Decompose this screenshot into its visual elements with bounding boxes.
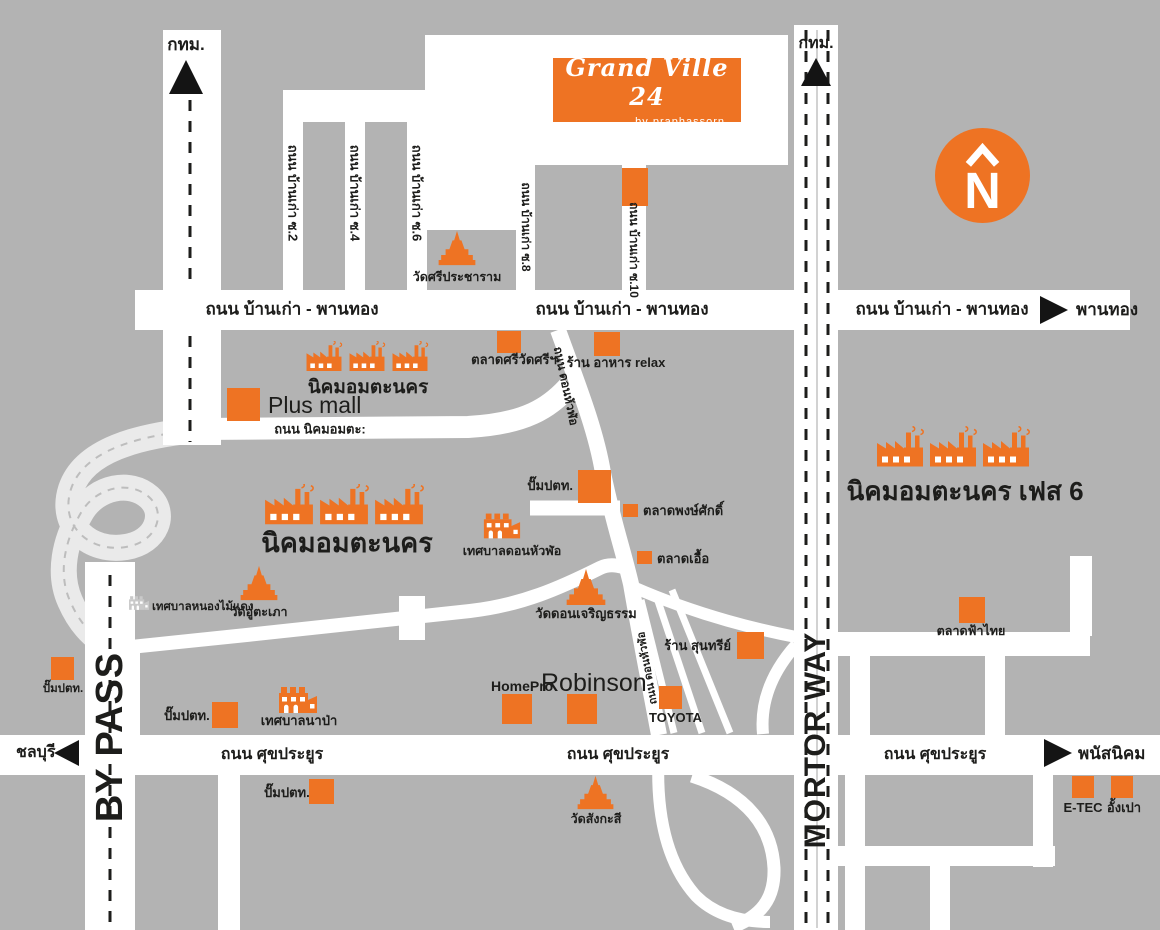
arrow-right-phanat-icon <box>1044 739 1072 767</box>
place-marker <box>622 168 648 206</box>
place-etec: E-TEC <box>1064 801 1103 814</box>
temple-icon <box>438 230 476 266</box>
factory-icon <box>391 341 429 373</box>
arrow-right-phanthong-icon <box>1040 296 1068 324</box>
factory-icon <box>318 484 370 526</box>
dest-chonburi: ชลบุรี <box>16 745 55 761</box>
place-ptt-4: ปั๊มปตท. <box>264 786 310 799</box>
road-label-bankao-1: ถนน บ้านเก่า - พานทอง <box>205 301 378 318</box>
place-marker <box>737 632 764 659</box>
municipality-building-icon <box>277 682 319 716</box>
place-thesaban-napa: เทศบาลนาป่า <box>261 714 338 727</box>
road-label-bankao-2: ถนน บ้านเก่า - พานทอง <box>535 301 708 318</box>
place-wat-don-charoen-tham: วัดดอนเจริญธรรม <box>535 607 636 620</box>
place-ptt-2: ปั๊มปตท. <box>43 684 83 696</box>
place-marker <box>212 702 238 728</box>
place-marker <box>1111 776 1133 798</box>
road-south-stub <box>218 775 240 930</box>
place-marker <box>623 504 638 517</box>
place-wat-sri-pracharam: วัดศรีประชาราม <box>413 271 502 284</box>
road-label-sukprayoon-3: ถนน ศุขประยูร <box>884 747 986 763</box>
place-marker <box>1072 776 1094 798</box>
road-grid-h1 <box>838 846 1055 866</box>
factory-icon <box>348 341 386 373</box>
municipality-building-icon <box>128 594 150 611</box>
project-logo-subtitle: by praphassorn <box>561 116 733 128</box>
map-canvas: Grand Ville 24 by praphassorn N กทม. กทม… <box>0 0 1160 930</box>
factory-icon <box>928 426 978 470</box>
place-marker <box>227 388 260 421</box>
compass-north-letter: N <box>964 162 1000 219</box>
road-label-soi8: ถนน บ้านเก่า ซ.8 <box>520 182 532 271</box>
place-wat-sangkasi: วัดสังกะสี <box>571 813 622 826</box>
place-relax-restaurant: ร้าน อาหาร relax <box>567 356 666 369</box>
temple-icon <box>566 568 606 606</box>
temple-icon <box>577 775 614 810</box>
road-top-block-ext <box>425 165 517 230</box>
dest-bkk-left: กทม. <box>167 36 204 53</box>
place-marker <box>637 551 652 564</box>
road-ramp-1 <box>763 645 796 734</box>
road-label-nikhom-amata: ถนน นิคมอมตะ: <box>274 423 366 436</box>
arrow-left-chonburi-icon <box>54 740 79 766</box>
road-label-soi2: ถนน บ้านเก่า ซ.2 <box>287 145 300 242</box>
road-grid-v2 <box>1033 775 1053 867</box>
road-label-soi6: ถนน บ้านเก่า ซ.6 <box>411 145 424 242</box>
place-talad-fa-thai: ตลาดฟ้าไทย <box>937 625 1006 638</box>
factory-icon <box>305 341 343 373</box>
place-marker <box>594 332 620 356</box>
road-label-sukprayoon-1: ถนน ศุขประยูร <box>221 747 323 763</box>
factory-icon <box>981 426 1031 470</box>
place-marker <box>502 694 532 724</box>
road-label-soi4: ถนน บ้านเก่า ซ.4 <box>349 145 362 242</box>
road-label-sukprayoon-2: ถนน ศุขประยูร <box>567 747 669 763</box>
place-amata-phase6: นิคมอมตะนคร เฟส 6 <box>846 478 1083 504</box>
place-talad-pongsak: ตลาดพงษ์ศักดิ์ <box>643 504 723 517</box>
place-talad-uea: ตลาดเอื้อ <box>657 552 709 565</box>
road-label-bankao-3: ถนน บ้านเก่า - พานทอง <box>855 301 1028 318</box>
place-angpao: อั้งเปา <box>1107 801 1141 814</box>
place-thesaban-nong-mai-daeng: เทศบาลหนองไม้แดง <box>152 602 253 614</box>
project-logo: Grand Ville 24 by praphassorn <box>553 58 741 122</box>
place-ptt-3: ปั๊มปตท. <box>164 709 210 722</box>
road-label-soi10: ถนน บ้านเก่า ซ.10 <box>628 202 640 298</box>
arrow-up-bkk-right-icon <box>801 58 831 86</box>
project-logo-title: Grand Ville 24 <box>561 53 733 111</box>
road-grid-v3 <box>930 866 950 930</box>
factory-icon <box>263 484 315 526</box>
place-ptt-1: ปั๊มปตท. <box>527 479 573 492</box>
place-thesaban-don-hua-lo: เทศบาลดอนหัวฬ่อ <box>463 545 562 558</box>
arrow-up-bkk-left-icon <box>169 60 203 94</box>
white-road-paths <box>92 330 838 927</box>
municipality-building-icon <box>482 508 522 542</box>
place-marker <box>567 694 597 724</box>
place-toyota: TOYOTA <box>649 711 702 724</box>
place-talad-sri-wat-sri: ตลาดศรีวัดศรีฯ <box>471 353 557 366</box>
road-label-motorway: MORTOR WAY <box>801 632 831 849</box>
place-marker <box>497 331 521 353</box>
place-plus-mall: Plus mall <box>268 394 361 417</box>
place-marker <box>578 470 611 503</box>
temple-icon <box>240 565 278 601</box>
road-east-stub-up <box>1070 556 1092 636</box>
place-robinson: Robinson <box>541 671 647 696</box>
road-east-stub-down-1 <box>850 656 870 736</box>
place-marker <box>659 686 682 709</box>
factory-icon <box>373 484 425 526</box>
place-marker <box>51 657 74 680</box>
road-label-bypass: BY PASS <box>91 652 129 822</box>
factory-icon <box>875 426 925 470</box>
place-marker <box>959 597 985 623</box>
north-compass-icon: N <box>935 128 1030 223</box>
dest-bkk-right: กทม. <box>798 36 833 52</box>
dest-phanat-nikhom: พนัสนิคม <box>1078 745 1145 762</box>
place-ran-suntaree: ร้าน สุนทรีย์ <box>664 639 731 652</box>
road-east-stub-down-2 <box>985 656 1005 736</box>
place-marker <box>309 779 334 804</box>
place-amata-nakorn-main: นิคมอมตะนคร <box>261 530 432 557</box>
dest-phanthong: พานทอง <box>1076 301 1138 318</box>
